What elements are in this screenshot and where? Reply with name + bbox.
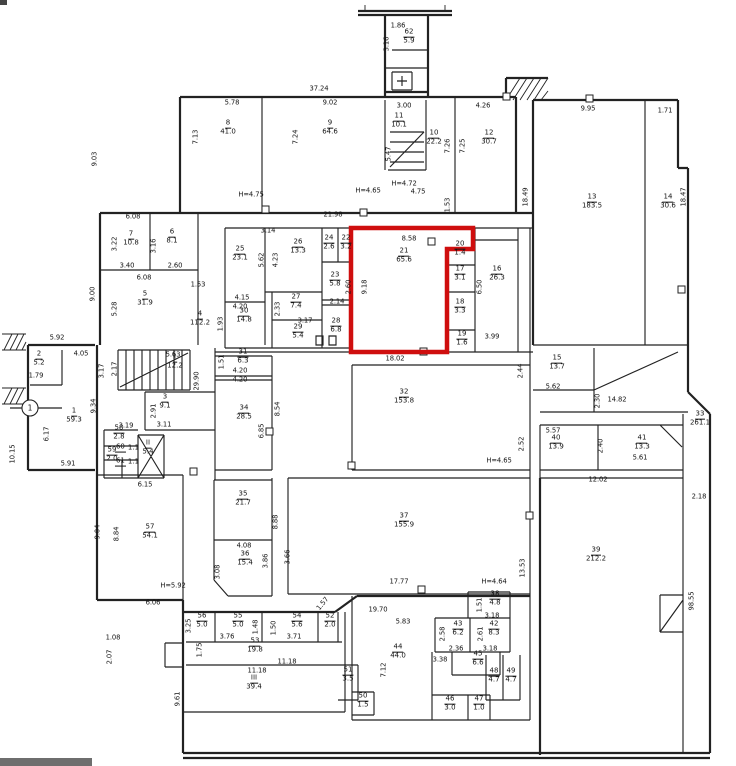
dimension-label: 5.91 [61,460,76,467]
room-label-19: 191.6 [456,331,467,348]
dimension-label: 18.47 [680,188,687,207]
room-label-23: 235.8 [329,272,340,289]
dimension-label: 1.86 [391,22,406,29]
dimension-label: 2.14 [330,298,345,305]
dimension-label: 1.93 [217,317,224,332]
room-area: 14.8 [236,317,252,325]
room-label-20: 201.4 [454,241,465,258]
room-label-62: 625.9 [403,29,414,46]
room-label-54: 545.6 [291,613,302,630]
room-label-2: 25.2 [33,351,44,368]
dimension-label: 5.92 [50,334,65,341]
room-label-37: 37155.9 [394,513,414,530]
room-label-56: 565.0 [196,613,207,630]
room-area: 13.3 [634,444,650,452]
dimension-label: 2.30 [594,394,601,409]
room-label-13: 13183.5 [582,194,602,211]
axis-marker-label: 1 [22,400,39,417]
room-label-46: 463.0 [444,696,455,713]
room-label-38: 384.8 [489,591,500,608]
dimension-label: 9.61 [174,692,181,707]
room-area: 5.4 [292,333,303,341]
room-label-49: 494.7 [505,668,516,685]
room-label-36: 3615.4 [237,551,253,568]
room-area: 1.1 [128,458,139,466]
room-area: 5.2 [33,360,44,368]
dimension-label: 12.02 [589,476,608,483]
dimension-label: 4.08 [237,542,252,549]
room-label-21: 2165.6 [396,248,412,265]
room-label-4: 4112.2 [190,311,210,328]
dimension-label: 9.03 [91,152,98,167]
dimension-label: 3.16 [383,37,390,52]
dimension-label: 8.84 [113,527,120,542]
dimension-label: 1.71 [658,107,673,114]
room-area: 23.1 [232,255,248,263]
dimension-label: 2.91 [150,404,157,419]
dimension-label: 7.12 [380,663,387,678]
dimension-label: 3.22 [111,237,118,252]
dimension-label: 1.79 [29,372,44,379]
room-area: 65.6 [396,257,412,265]
room-area: 3.2 [340,244,351,252]
dimension-label: 4.75 [411,188,426,195]
room-label-53: 5319.8 [247,638,263,655]
dimension-label: 6.85 [258,424,265,439]
room-area: 212.2 [586,556,606,564]
dimension-label: 9.34 [90,399,97,414]
dimension-label: 3.25 [185,619,192,634]
dimension-label: H=5.92 [160,582,185,589]
room-area: 19.8 [247,647,263,655]
dimension-label: 1.48 [252,620,259,635]
dimension-label: 19.70 [369,606,388,613]
dimension-label: 7.25 [459,139,466,154]
room-number: 61 [115,458,126,467]
room-area: 183.5 [582,203,602,211]
room-area: 7.4 [290,303,301,311]
room-area: 28.5 [236,414,252,422]
dimension-label: 5.83 [396,618,411,625]
dimension-label: 1.51 [218,355,225,370]
dimension-label: 29.90 [193,372,200,391]
room-label-3: 39.1 [159,394,170,411]
dimension-label: 18.49 [522,188,529,207]
dimension-label: 3.19 [119,422,134,429]
dimension-label: 3.86 [262,554,269,569]
dimension-label: 6.08 [137,274,152,281]
room-label-43: 436.2 [452,621,463,638]
dimension-label: 1.08 [106,634,121,641]
room-label-32: 32153.8 [394,389,414,406]
dimension-label: 5.47 [385,147,392,162]
room-area: 2.0 [324,622,335,630]
room-area: 26.3 [489,275,505,283]
room-label-39: 39212.2 [586,547,606,564]
room-area: 44.0 [390,653,406,661]
dimension-label: 6.17 [43,427,50,442]
dimension-label: 4.26 [476,102,491,109]
room-label-31: 316.3 [237,349,248,366]
room-area: 5.0 [196,622,207,630]
room-area: 4.7 [488,677,499,685]
room-area: 2.6 [323,244,334,252]
dimension-label: 6.08 [126,213,141,220]
dimension-label: 5.78 [225,99,240,106]
room-label-34: 3428.5 [236,405,252,422]
dimension-label: 1.57 [316,596,331,612]
room-area: 5.9 [403,38,414,46]
room-area: 15.4 [237,560,253,568]
room-label-45: 456.6 [472,651,483,668]
room-label-1: 159.3 [66,408,82,425]
room-label-35: 3521.7 [235,491,251,508]
dimension-label: 1.50 [270,621,277,636]
dimension-label: 17.77 [390,578,409,585]
room-label-61: 611.1 [115,458,139,467]
dimension-label: 2.07 [106,650,113,665]
room-area: 112.2 [190,320,210,328]
room-label-57: 5754.1 [142,524,158,541]
floor-plan: 625.9841.0964.61110.11022.21230.713183.5… [0,0,736,766]
dimension-label: 7.24 [292,130,299,145]
room-label-12: 1230.7 [481,130,497,147]
room-label-26: 2613.3 [290,239,306,256]
room-area: 6.2 [452,630,463,638]
room-area: 5.4 [142,449,153,457]
room-label-14: 1430.6 [660,194,676,211]
room-area: 41.0 [220,129,236,137]
dimension-label: 3.18 [483,645,498,652]
dimension-label: 2.18 [692,493,707,500]
room-area: 59.3 [66,417,82,425]
room-area: 54.1 [142,533,158,541]
room-area: 30.7 [481,139,497,147]
room-area: 13.7 [549,364,565,372]
dimension-label: 3.17 [98,364,105,379]
dimension-label: 4.20 [233,303,248,310]
dimension-label: 3.66 [284,550,291,565]
room-area: 21.7 [235,500,251,508]
room-area: 2.8 [113,434,124,442]
dimension-label: 21.98 [324,211,343,218]
room-label-55: 555.0 [232,613,243,630]
dimension-label: 2.61 [477,627,484,642]
room-label-10: 1022.2 [426,130,442,147]
dimension-label: 3.00 [397,102,412,109]
room-area: 8.3 [488,630,499,638]
dimension-label: 3.76 [220,633,235,640]
room-area: 1.0 [473,705,484,713]
dimension-label: 8.58 [402,235,417,242]
room-area: 155.9 [394,522,414,530]
room-area: 1.1 [128,444,139,452]
room-area: 3.0 [444,705,455,713]
dimension-label: 5.61 [633,454,648,461]
dimension-label: 3.18 [485,612,500,619]
room-label-17: 173.1 [454,266,465,283]
room-label-60: 601.1 [115,444,139,453]
room-area: 13.3 [290,248,306,256]
dimension-label: 3.99 [485,333,500,340]
room-label-48: 484.7 [488,668,499,685]
room-label-42: 428.3 [488,621,499,638]
room-area: 1.4 [454,250,465,258]
room-label-18: 183.3 [454,299,465,316]
dimension-label: H=4.65 [486,457,511,464]
room-area: 8.1 [166,238,177,246]
dimension-label: 6.50 [476,280,483,295]
dimension-label: 4.23 [272,253,279,268]
room-area: 6.8 [330,327,341,335]
room-label-22: 223.2 [340,235,351,252]
room-area: 5.0 [232,622,243,630]
room-area: 9.1 [159,403,170,411]
scan-artifact-bottom [0,758,92,766]
room-label-16: 1626.3 [489,266,505,283]
room-area: 13.9 [548,444,564,452]
room-label-51: 513.5 [342,667,353,684]
dimension-label: 7.13 [192,130,199,145]
room-label-III: III39.4 [246,675,262,692]
dimension-label: 9.02 [323,99,338,106]
dimension-label: 3.17 [298,317,313,324]
room-area: 6.6 [472,660,483,668]
dimension-label: 11.18 [278,658,297,665]
room-area: 3.5 [342,676,353,684]
room-area: 4.8 [489,600,500,608]
dimension-label: 8.88 [272,515,279,530]
dimension-label: 6.15 [138,481,153,488]
dimension-label: 2.33 [274,302,281,317]
room-label-27: 277.4 [290,294,301,311]
dimension-label: 1.53 [191,281,206,288]
dimension-label: 2.40 [597,439,604,454]
dimension-label: 5.62 [546,383,561,390]
dimension-label: 2.17 [111,362,118,377]
scan-artifact-top [0,0,7,5]
dimension-label: 2.60 [168,262,183,269]
room-label-50: 501.5 [357,693,368,710]
room-area: 10.1 [391,122,407,130]
dimension-label: 3.11 [157,421,172,428]
dimension-label: 5.62 [258,253,265,268]
labels-layer: 625.9841.0964.61110.11022.21230.713183.5… [0,0,736,766]
dimension-label: 4.20 [233,367,248,374]
dimension-label: 14.82 [608,396,627,403]
room-area: 10.8 [123,240,139,248]
dimension-label: 2.36 [449,645,464,652]
room-label-33: 33261.1 [690,411,710,428]
room-label-47: 471.0 [473,696,484,713]
room-number: 60 [115,444,126,453]
room-label-28: 286.8 [330,318,341,335]
dimension-label: 3.08 [214,565,221,580]
dimension-label: 7.26 [444,139,451,154]
room-label-52: 522.0 [324,613,335,630]
room-area: 31.9 [137,300,153,308]
dimension-label: 2.44 [517,364,524,379]
dimension-label: 3.14 [261,227,276,234]
dimension-label: H=4.75 [238,191,263,198]
dimension-label: 9.00 [89,287,96,302]
room-area: 1.5 [357,702,368,710]
room-label-44: 4444.0 [390,644,406,661]
room-area: 261.1 [690,420,710,428]
room-label-24: 242.6 [323,235,334,252]
room-area: 4.7 [505,677,516,685]
dimension-label: 3.40 [120,262,135,269]
dimension-label: 4.20 [233,376,248,383]
room-area: 5.6 [291,622,302,630]
dimension-label: H=4.64 [481,578,506,585]
dimension-label: 18.02 [386,355,405,362]
dimension-label: 5.63 [166,351,181,358]
dimension-label: 6.06 [146,599,161,606]
dimension-label: 37.24 [310,85,329,92]
room-area: 6.3 [237,358,248,366]
dimension-label: 5.28 [111,302,118,317]
room-label-II: II5.4 [142,440,153,457]
dimension-label: 9.04 [94,525,101,540]
dimension-label: 4.05 [74,350,89,357]
room-label-25: 2523.1 [232,246,248,263]
dimension-label: 1.53 [444,198,451,213]
dimension-label: 11.18 [248,667,267,674]
dimension-label: 1.51 [476,598,483,613]
room-label-29: 295.4 [292,324,303,341]
room-label-6: 68.1 [166,229,177,246]
dimension-label: 2.60 [345,280,352,295]
room-label-41: 4113.3 [634,435,650,452]
dimension-label: 9.95 [581,105,596,112]
room-label-40: 4013.9 [548,435,564,452]
room-label-9: 964.6 [322,120,338,137]
dimension-label: 13.53 [519,559,526,578]
dimension-label: 5.57 [546,427,561,434]
room-area: 5.8 [329,281,340,289]
dimension-label: H=4.65 [355,187,380,194]
room-label-15: 1513.7 [549,355,565,372]
room-area: 12.2 [167,363,183,371]
dimension-label: 98.55 [688,592,695,611]
room-label-7: 710.8 [123,231,139,248]
room-area: 22.2 [426,139,442,147]
room-area: 64.6 [322,129,338,137]
room-area: 39.4 [246,684,262,692]
dimension-label: 2.58 [439,627,446,642]
room-area: 3.3 [454,308,465,316]
room-area: 1.6 [456,340,467,348]
dimension-label: 2.52 [518,437,525,452]
room-area: 3.1 [454,275,465,283]
dimension-label: 9.18 [361,280,368,295]
room-area: 30.6 [660,203,676,211]
dimension-label: 8.54 [274,402,281,417]
room-label-5: 531.9 [137,291,153,308]
room-label-11: 1110.1 [391,113,407,130]
room-area: 153.8 [394,398,414,406]
dimension-label: 10.15 [9,445,16,464]
dimension-label: 3.71 [287,633,302,640]
dimension-label: 4.15 [235,294,250,301]
dimension-label: 1.75 [196,643,203,658]
room-label-8: 841.0 [220,120,236,137]
dimension-label: 3.38 [433,656,448,663]
dimension-label: 3.16 [150,239,157,254]
